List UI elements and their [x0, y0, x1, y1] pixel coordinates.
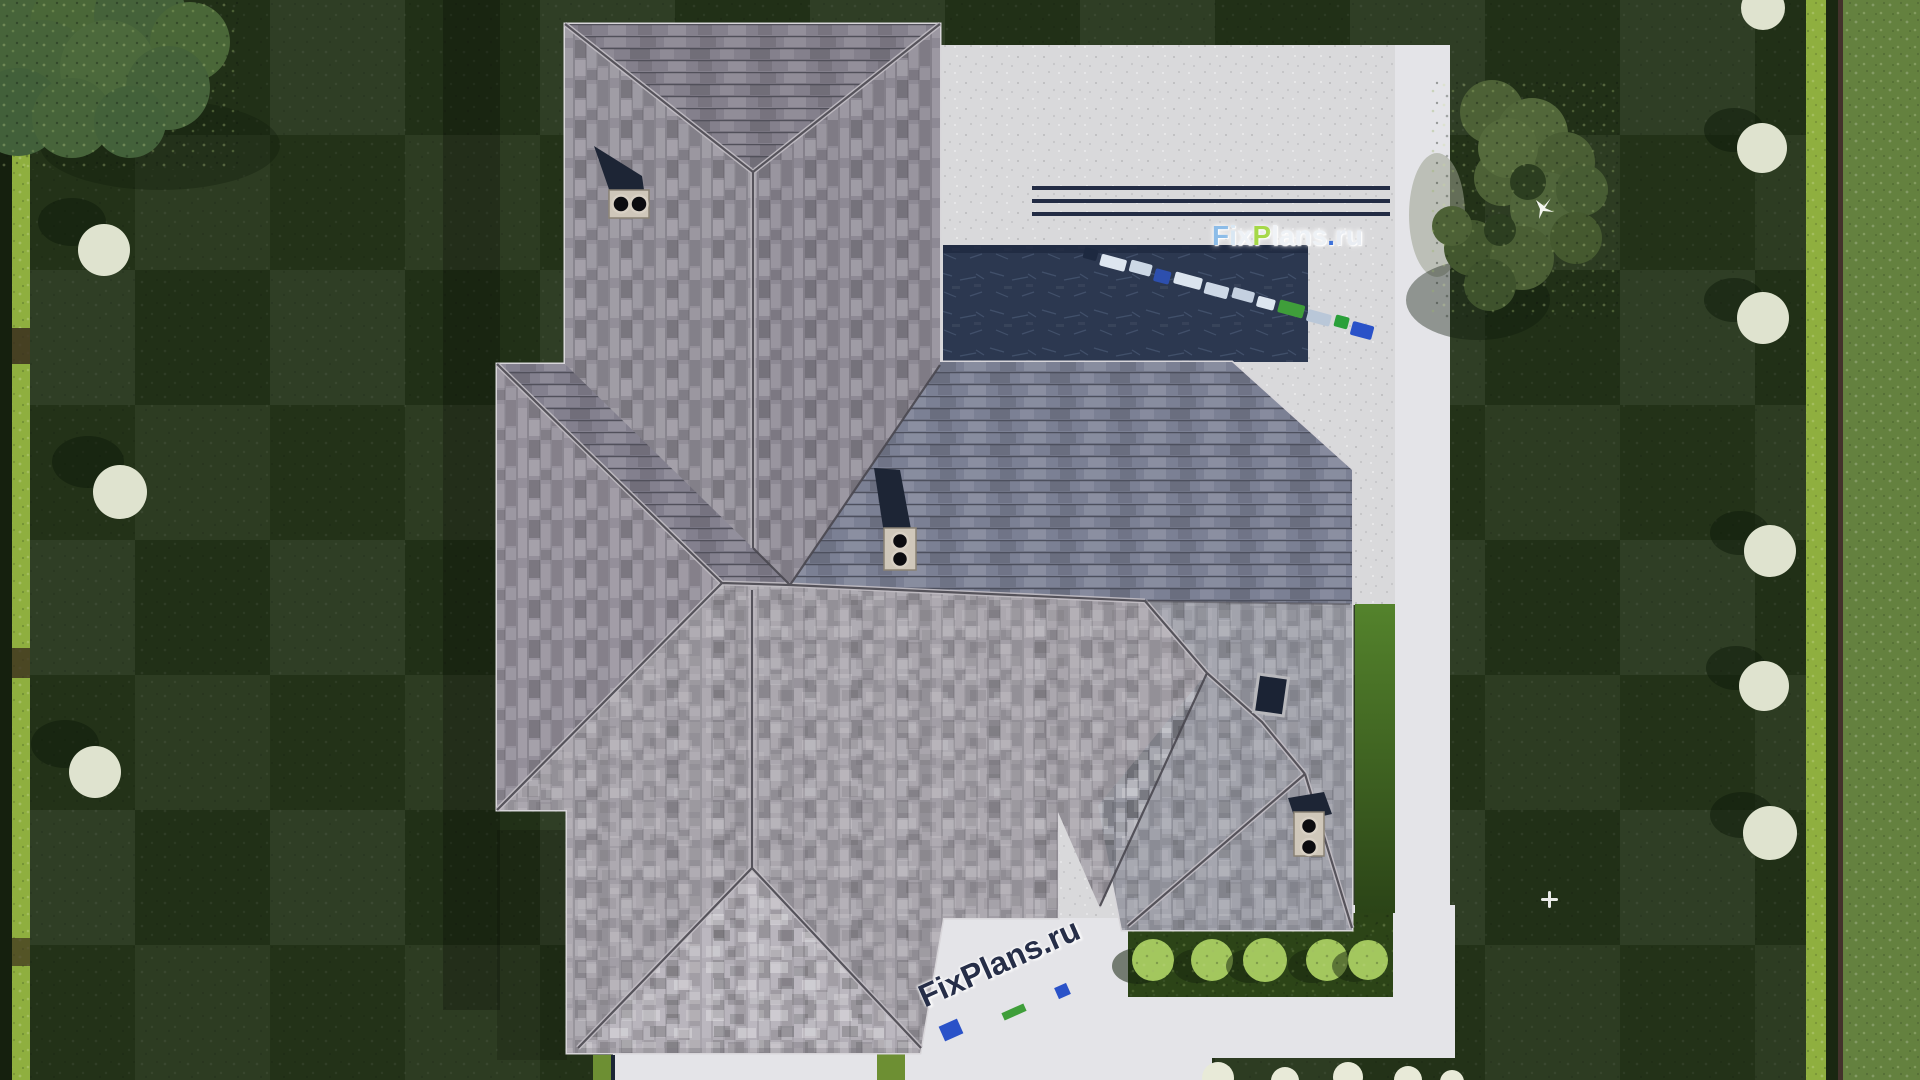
east-grass-strip — [1355, 604, 1395, 913]
white-bush — [69, 746, 121, 798]
white-bush — [1737, 292, 1789, 344]
white-bush — [1737, 123, 1787, 173]
watermark-letter: x — [1237, 220, 1253, 251]
pool-step-line-1 — [1032, 186, 1390, 190]
watermark-letter: s — [1312, 220, 1328, 251]
white-bush — [1739, 661, 1789, 711]
tree-cluster-right — [1406, 80, 1620, 340]
flue-pipe — [1301, 839, 1317, 855]
skylight — [1254, 674, 1289, 716]
neighbor-lawn-texture — [1843, 0, 1920, 1080]
right-boundary — [1806, 0, 1920, 1080]
right-hedge-gap — [1826, 0, 1838, 1080]
south-hedge-bit-left — [593, 1055, 613, 1080]
white-bush — [1743, 806, 1797, 860]
fence-line — [1838, 0, 1843, 1080]
south-hedge-post — [611, 1055, 615, 1080]
pool-step-line-2 — [1032, 199, 1390, 203]
flue-pipe — [631, 196, 648, 213]
watermark-letter: n — [1295, 220, 1312, 251]
watermark-letter: . — [1327, 220, 1335, 251]
watermark-letter: a — [1279, 220, 1295, 251]
left-hedge-gate-1 — [12, 328, 30, 364]
tree-canopy-topleft — [0, 0, 280, 190]
watermark-letter: u — [1346, 220, 1363, 251]
watermark-letter: F — [1212, 220, 1229, 251]
watermark-letter: P — [1252, 220, 1271, 251]
flue-pipe — [613, 196, 630, 213]
tree-texture — [1430, 80, 1620, 320]
left-hedge-gate-3 — [12, 938, 30, 966]
white-bush — [78, 224, 130, 276]
flue-pipe — [892, 533, 908, 549]
white-bush — [93, 465, 147, 519]
aerial-render: FixPlans.ru FixPlans.ru — [0, 0, 1920, 1080]
house-south-shadow — [497, 830, 567, 1060]
house-west-shadow — [443, 0, 500, 1010]
watermark-letter: i — [1229, 220, 1237, 251]
left-hedge-gate-2 — [12, 648, 30, 678]
white-bush — [1744, 525, 1796, 577]
tree-texture — [0, 0, 240, 170]
right-hedge-texture — [1806, 0, 1826, 1080]
south-hedge-bit-right — [877, 1053, 905, 1080]
watermark-letter: r — [1335, 220, 1346, 251]
scene-canvas — [0, 0, 1920, 1080]
flue-pipe — [1301, 818, 1317, 834]
watermark-main: FixPlans.ru — [1212, 220, 1363, 252]
watermark-letter: l — [1271, 220, 1279, 251]
pool-step-line-3 — [1032, 212, 1390, 216]
flue-pipe — [892, 551, 908, 567]
